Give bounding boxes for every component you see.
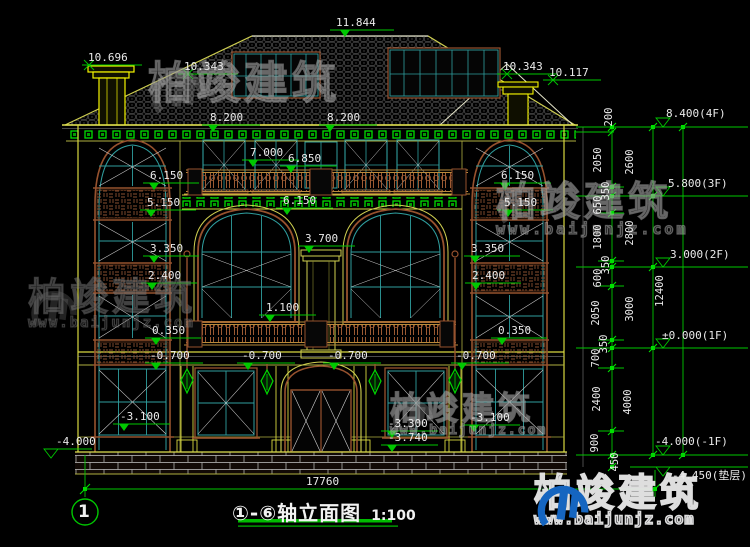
cornice	[62, 125, 578, 141]
elevation-label: -3.740	[388, 432, 428, 444]
elevation-label: 3.350	[471, 243, 504, 255]
dim-chain-value: 2400	[592, 376, 604, 422]
level-flag-4f: 8.400(4F)	[666, 108, 726, 120]
title-name: 轴立面图	[277, 501, 361, 525]
elevation-label: 10.117	[549, 67, 589, 79]
elevation-label: -0.700	[242, 350, 282, 362]
level-flag-cushion: -4.450(垫层)	[672, 470, 747, 482]
elevation-label: 0.350	[498, 325, 531, 337]
dim-chain-value: 200	[604, 94, 616, 140]
brick-base	[75, 452, 567, 474]
elevation-geometry	[0, 0, 750, 547]
elevation-label: 6.150	[150, 170, 183, 182]
elevation-label: 10.343	[184, 61, 224, 73]
level-flag-1f: ±0.000(1F)	[662, 330, 728, 342]
level-flag-3f: 5.800(3F)	[668, 178, 728, 190]
dim-chain-value: 900	[590, 420, 602, 466]
elevation-label: -0.700	[456, 350, 496, 362]
dim-chain-value: 700	[591, 335, 603, 381]
elevation-label: 7.000	[250, 147, 283, 159]
dim-chain-value: 450	[610, 439, 622, 485]
elevation-label: 5.150	[504, 197, 537, 209]
elevation-label: -3.100	[120, 411, 160, 423]
dim-chain-value: 4000	[623, 379, 635, 425]
level-flag-2f: 3.000(2F)	[670, 249, 730, 261]
level-flag-b1: -4.000(-1F)	[655, 436, 728, 448]
elevation-label: 3.700	[305, 233, 338, 245]
elevation-label: 0.350	[152, 325, 185, 337]
elevation-label: -0.700	[150, 350, 190, 362]
cad-elevation-drawing: 10.696 10.343 11.844 10.343 10.117 8.200…	[0, 0, 750, 547]
axis-bubble-label: 1	[78, 502, 90, 522]
elevation-label: 2.400	[148, 270, 181, 282]
dim-chain-value: 2800	[625, 210, 637, 256]
elevation-label: 6.850	[288, 153, 321, 165]
title-axes: ①-⑥	[232, 501, 277, 525]
elevation-label: 10.343	[503, 61, 543, 73]
balcony-3f	[184, 169, 470, 195]
elevation-label: -0.700	[328, 350, 368, 362]
roof	[65, 36, 575, 125]
elevation-label: 2.400	[472, 270, 505, 282]
elevation-label: 11.844	[336, 17, 376, 29]
elevation-label: -3.300	[388, 418, 428, 430]
balcony-1f	[184, 321, 458, 347]
drawing-title: ①-⑥轴立面图1:100	[232, 497, 416, 526]
elevation-label: 6.150	[283, 195, 316, 207]
dim-chain-value: 2600	[625, 139, 637, 185]
overall-width-dim: 17760	[306, 476, 339, 488]
title-scale: 1:100	[371, 508, 416, 524]
elevation-label: 8.200	[327, 112, 360, 124]
elevation-label: 6.150	[501, 170, 534, 182]
elevation-label: 3.350	[150, 243, 183, 255]
elevation-label: -4.000	[56, 436, 96, 448]
elevation-label: 5.150	[147, 197, 180, 209]
elevation-label: 1.100	[266, 302, 299, 314]
elevation-label: 8.200	[210, 112, 243, 124]
dim-chain-total: 12400	[655, 268, 667, 314]
entrance-door	[281, 362, 361, 452]
dim-chain-value: 3000	[625, 286, 637, 332]
elevation-label: 10.696	[88, 52, 128, 64]
elevation-label: -3.100	[470, 412, 510, 424]
